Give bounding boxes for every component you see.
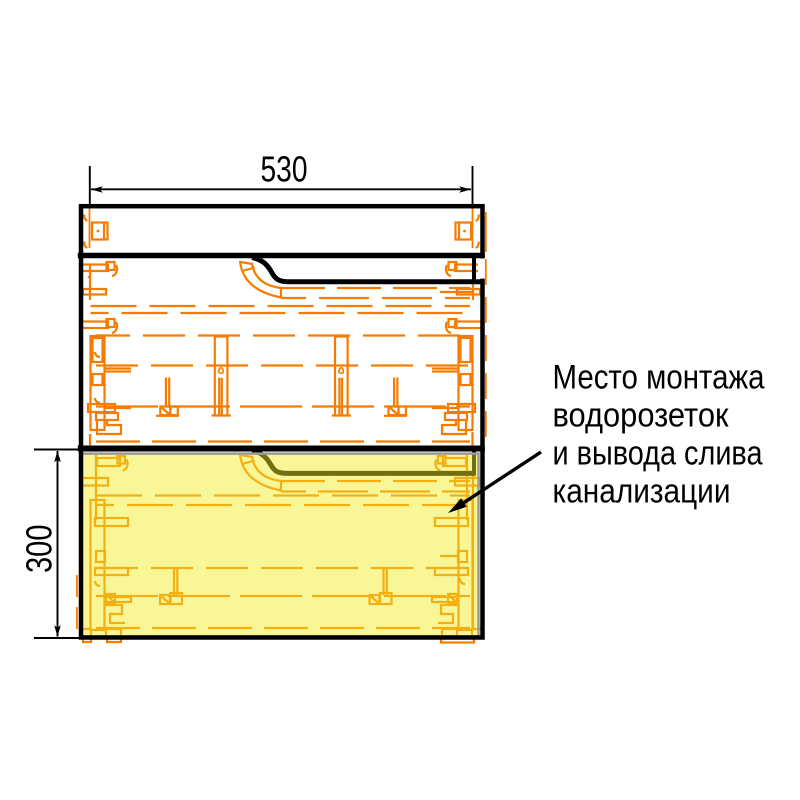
svg-text:300: 300 (19, 525, 60, 574)
svg-text:530: 530 (261, 149, 308, 190)
svg-text:водорозеток: водорозеток (553, 397, 730, 435)
svg-text:канализации: канализации (553, 473, 731, 511)
svg-text:Место монтажа: Место монтажа (553, 359, 765, 397)
svg-text:и вывода слива: и вывода слива (553, 435, 763, 473)
